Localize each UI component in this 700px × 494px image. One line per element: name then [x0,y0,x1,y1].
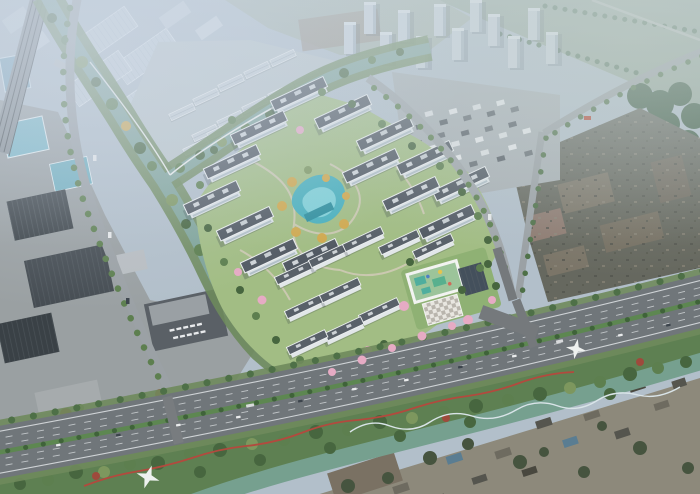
aerial-render [0,0,700,494]
haze-overlay-topright [0,0,700,494]
aerial-render-canvas [0,0,700,494]
